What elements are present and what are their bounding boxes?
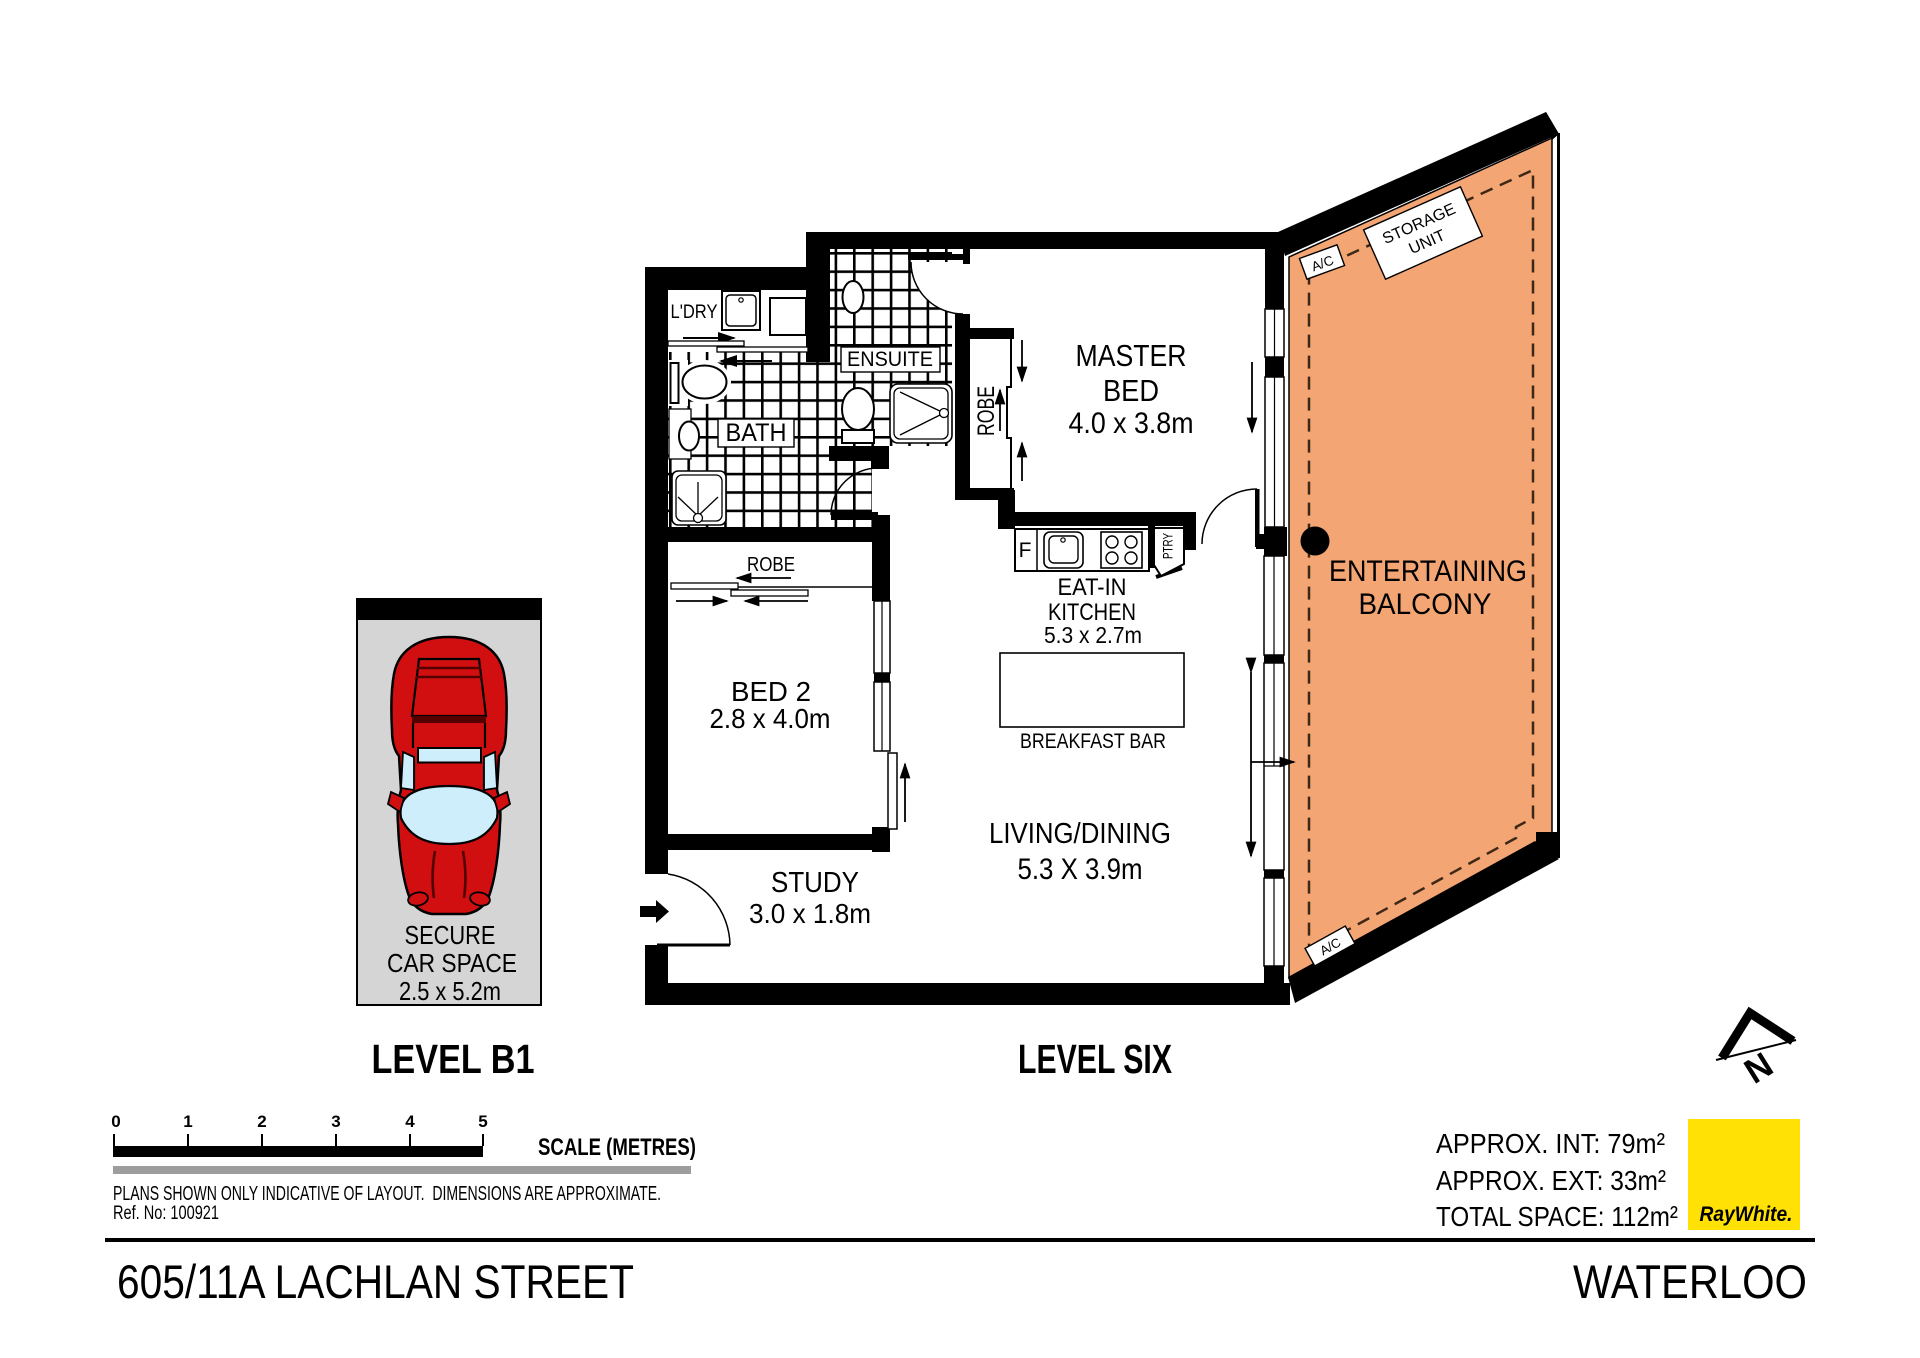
svg-text:L'DRY: L'DRY — [671, 302, 718, 323]
svg-text:2: 2 — [257, 1112, 266, 1131]
svg-text:BREAKFAST BAR: BREAKFAST BAR — [1020, 730, 1166, 753]
svg-text:LEVEL SIX: LEVEL SIX — [1018, 1036, 1172, 1082]
svg-text:2.8 x 4.0m: 2.8 x 4.0m — [710, 703, 831, 734]
svg-text:Ref. No: 100921: Ref. No: 100921 — [113, 1203, 219, 1224]
svg-text:LEVEL B1: LEVEL B1 — [372, 1036, 535, 1082]
svg-text:F: F — [1019, 539, 1032, 562]
svg-text:TOTAL SPACE: 112m²: TOTAL SPACE: 112m² — [1436, 1201, 1678, 1232]
svg-text:SCALE (METRES): SCALE (METRES) — [538, 1134, 696, 1161]
svg-text:STUDY: STUDY — [771, 867, 859, 899]
svg-text:ROBE: ROBE — [973, 386, 1000, 436]
svg-text:ENTERTAINING: ENTERTAINING — [1329, 555, 1527, 588]
svg-text:MASTER: MASTER — [1076, 338, 1187, 373]
svg-text:APPROX. EXT: 33m²: APPROX. EXT: 33m² — [1436, 1165, 1666, 1196]
svg-text:PLANS SHOWN ONLY INDICATIVE OF: PLANS SHOWN ONLY INDICATIVE OF LAYOUT. D… — [113, 1183, 661, 1205]
svg-text:ROBE: ROBE — [747, 554, 795, 576]
svg-text:4.0 x 3.8m: 4.0 x 3.8m — [1069, 407, 1194, 440]
svg-text:605/11A LACHLAN STREET: 605/11A LACHLAN STREET — [117, 1255, 634, 1308]
svg-text:3.0 x 1.8m: 3.0 x 1.8m — [749, 898, 871, 929]
svg-text:5.3 x 2.7m: 5.3 x 2.7m — [1044, 622, 1142, 648]
svg-text:BATH: BATH — [726, 419, 787, 447]
svg-text:WATERLOO: WATERLOO — [1573, 1255, 1807, 1308]
svg-text:LIVING/DINING: LIVING/DINING — [989, 818, 1171, 850]
svg-text:BED: BED — [1103, 373, 1159, 408]
svg-text:PTRY: PTRY — [1160, 533, 1176, 559]
svg-text:APPROX. INT: 79m²: APPROX. INT: 79m² — [1436, 1128, 1665, 1159]
svg-text:2.5 x 5.2m: 2.5 x 5.2m — [399, 976, 501, 1006]
svg-text:5.3 X 3.9m: 5.3 X 3.9m — [1018, 853, 1143, 886]
svg-text:1: 1 — [183, 1112, 192, 1131]
svg-text:5: 5 — [478, 1112, 487, 1131]
svg-text:RayWhite.: RayWhite. — [1700, 1203, 1793, 1226]
svg-text:ENSUITE: ENSUITE — [847, 348, 933, 371]
svg-text:SECURE: SECURE — [405, 920, 496, 950]
svg-text:EAT-IN: EAT-IN — [1058, 574, 1127, 601]
svg-text:CAR SPACE: CAR SPACE — [387, 948, 517, 978]
svg-text:BALCONY: BALCONY — [1359, 588, 1492, 621]
svg-text:0: 0 — [111, 1112, 120, 1131]
svg-text:4: 4 — [405, 1112, 415, 1131]
svg-text:3: 3 — [331, 1112, 340, 1131]
